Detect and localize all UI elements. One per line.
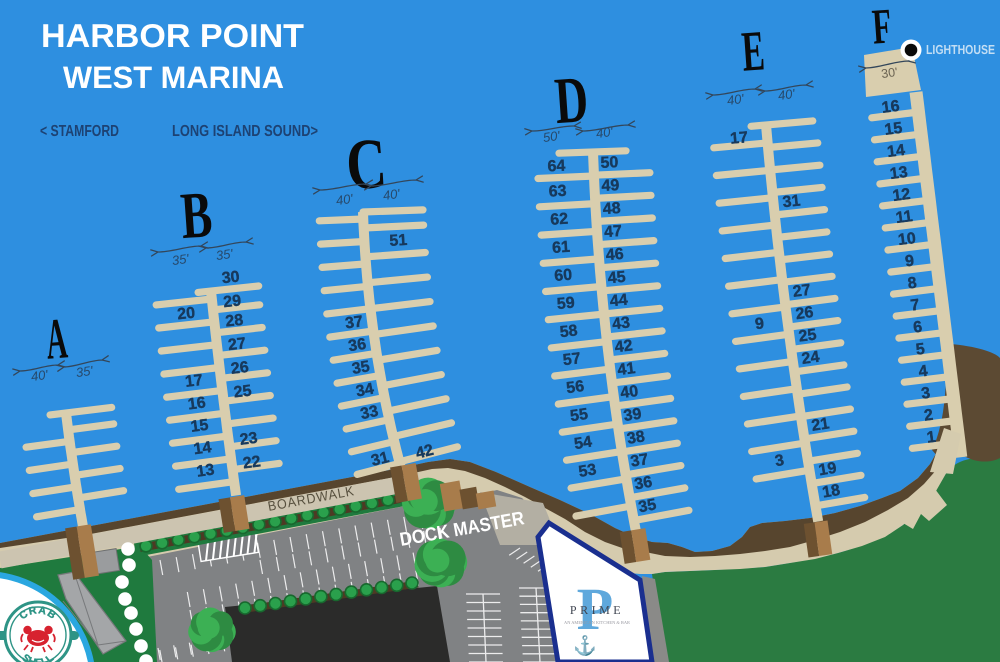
svg-text:E: E — [740, 19, 767, 83]
svg-text:D: D — [552, 63, 590, 138]
svg-text:17: 17 — [729, 129, 748, 148]
svg-text:44: 44 — [609, 292, 628, 311]
svg-text:11: 11 — [895, 208, 914, 227]
svg-text:20: 20 — [177, 305, 197, 324]
svg-text:29: 29 — [223, 292, 243, 311]
svg-text:13: 13 — [889, 164, 909, 183]
svg-text:46: 46 — [605, 246, 624, 264]
svg-text:57: 57 — [562, 350, 582, 369]
svg-text:16: 16 — [881, 98, 901, 117]
svg-text:31: 31 — [782, 193, 802, 212]
svg-text:19: 19 — [817, 460, 837, 480]
svg-text:36: 36 — [347, 336, 367, 355]
svg-text:25: 25 — [233, 382, 253, 401]
svg-text:38: 38 — [626, 428, 646, 448]
svg-text:55: 55 — [569, 406, 589, 425]
svg-text:40': 40' — [335, 191, 354, 208]
svg-text:14: 14 — [193, 439, 213, 458]
svg-text:⚓: ⚓ — [573, 634, 597, 657]
svg-text:LONG ISLAND SOUND>: LONG ISLAND SOUND> — [172, 123, 318, 140]
svg-text:30': 30' — [880, 65, 898, 81]
svg-text:62: 62 — [550, 211, 569, 229]
svg-text:WEST MARINA: WEST MARINA — [63, 60, 284, 95]
svg-text:AN AMERICAN KITCHEN & BAR: AN AMERICAN KITCHEN & BAR — [564, 620, 630, 625]
svg-text:PRIME: PRIME — [570, 603, 624, 617]
svg-text:35': 35' — [75, 363, 94, 380]
svg-text:34: 34 — [355, 381, 376, 401]
svg-text:30: 30 — [221, 269, 241, 288]
svg-text:14: 14 — [886, 142, 906, 161]
svg-text:64: 64 — [547, 158, 566, 176]
svg-text:26: 26 — [795, 304, 815, 323]
svg-text:LIGHTHOUSE: LIGHTHOUSE — [926, 42, 995, 57]
svg-text:24: 24 — [801, 349, 821, 368]
svg-text:40': 40' — [777, 86, 796, 103]
svg-text:40': 40' — [595, 124, 614, 141]
svg-text:13: 13 — [196, 461, 216, 480]
svg-text:59: 59 — [556, 294, 575, 313]
svg-text:22: 22 — [242, 453, 262, 472]
svg-text:17: 17 — [184, 372, 204, 391]
svg-text:35: 35 — [637, 496, 658, 516]
svg-text:28: 28 — [225, 312, 245, 331]
svg-text:49: 49 — [601, 177, 620, 195]
svg-text:35: 35 — [351, 358, 371, 378]
svg-text:12: 12 — [892, 186, 912, 205]
svg-text:27: 27 — [227, 335, 247, 354]
svg-text:40': 40' — [382, 186, 401, 203]
svg-text:53: 53 — [577, 461, 597, 481]
svg-text:37: 37 — [629, 451, 649, 471]
svg-text:25: 25 — [798, 326, 818, 345]
svg-text:60: 60 — [554, 267, 573, 285]
svg-text:35': 35' — [171, 251, 190, 268]
svg-text:16: 16 — [187, 394, 207, 413]
svg-text:41: 41 — [617, 360, 637, 379]
svg-text:18: 18 — [821, 482, 842, 502]
svg-text:56: 56 — [565, 378, 585, 397]
svg-text:40': 40' — [726, 91, 745, 108]
svg-text:B: B — [178, 178, 214, 253]
svg-text:58: 58 — [559, 322, 579, 341]
svg-text:15: 15 — [884, 120, 904, 139]
svg-text:23: 23 — [239, 430, 259, 449]
svg-text:47: 47 — [604, 223, 623, 241]
svg-text:45: 45 — [607, 269, 626, 287]
svg-text:39: 39 — [623, 406, 643, 425]
svg-text:50': 50' — [542, 128, 561, 145]
svg-text:48: 48 — [602, 200, 621, 218]
svg-text:HARBOR POINT: HARBOR POINT — [41, 17, 304, 54]
svg-text:50: 50 — [600, 154, 619, 172]
svg-text:61: 61 — [552, 239, 571, 257]
svg-text:37: 37 — [344, 313, 364, 332]
svg-text:63: 63 — [548, 183, 567, 201]
svg-text:40': 40' — [30, 367, 49, 384]
svg-text:42: 42 — [614, 337, 634, 356]
svg-text:21: 21 — [810, 415, 830, 435]
svg-text:36: 36 — [633, 474, 654, 494]
svg-text:27: 27 — [792, 282, 812, 301]
svg-text:10: 10 — [897, 230, 917, 249]
svg-text:43: 43 — [611, 314, 631, 333]
svg-text:< STAMFORD: < STAMFORD — [40, 123, 119, 140]
svg-text:26: 26 — [230, 359, 250, 378]
svg-text:51: 51 — [389, 232, 408, 250]
svg-text:35': 35' — [215, 246, 234, 263]
svg-text:40: 40 — [619, 383, 639, 402]
svg-text:33: 33 — [359, 403, 380, 423]
svg-text:54: 54 — [573, 434, 593, 454]
svg-text:F: F — [870, 0, 893, 55]
svg-text:15: 15 — [190, 417, 210, 436]
